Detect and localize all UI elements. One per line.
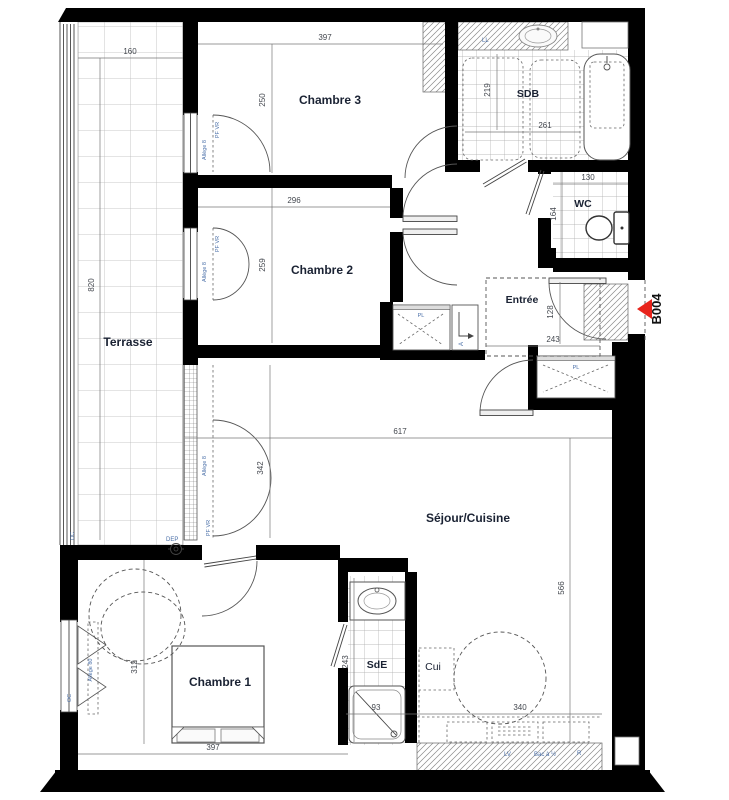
right-wall-niche xyxy=(615,737,639,765)
dim-sdb-height: 219 xyxy=(483,83,492,97)
wc-label: WC xyxy=(574,198,592,210)
dim-terrasse-width: 160 xyxy=(123,47,137,56)
sill-label-chambre3: Allège 8 xyxy=(202,140,208,160)
chambre1-label: Chambre 1 xyxy=(189,675,251,689)
dishwasher-label: LV xyxy=(504,752,511,758)
floorplan-page: PL PL A xyxy=(0,0,729,800)
dim-sejour-width: 617 xyxy=(393,427,407,436)
cuisine-label: Cui xyxy=(425,661,441,673)
entree-label: Entrée xyxy=(506,294,539,306)
dim-entree-width: 243 xyxy=(546,335,560,344)
dim-entree-height: 128 xyxy=(546,305,555,319)
unit-id-label: B004 xyxy=(649,293,664,325)
terrasse-label: Terrasse xyxy=(103,335,152,349)
window-pf-label-chambre2: PF VR xyxy=(215,236,221,252)
sill-label-chambre1: Allège 80 xyxy=(88,659,94,682)
technical-duct: A xyxy=(452,305,478,350)
sejour-label: Séjour/Cuisine xyxy=(426,511,510,525)
window-pf-label-chambre3: PF VR xyxy=(215,122,221,138)
chambre2-window xyxy=(184,228,197,300)
dim-chambre3-height: 250 xyxy=(258,93,267,107)
chambre3-label: Chambre 3 xyxy=(299,93,361,107)
dim-cuisine-width: 340 xyxy=(513,703,527,712)
dim-wc-width: 130 xyxy=(581,173,595,182)
terrasse-floor xyxy=(60,22,183,545)
chambre3-window xyxy=(184,113,197,173)
duct-label: A xyxy=(459,342,465,346)
dim-chambre2-height: 259 xyxy=(258,258,267,272)
dim-sde-width: 93 xyxy=(372,703,381,712)
dim-sejour-height: 566 xyxy=(557,581,566,595)
fridge-label: R xyxy=(577,751,582,757)
dim-sdb-width: 261 xyxy=(538,121,552,130)
half-sink-label: Bac à ½ xyxy=(534,751,556,758)
bay-window-track xyxy=(184,363,197,540)
dim-sejour-bay: 342 xyxy=(256,461,265,475)
shower-tray xyxy=(349,686,405,743)
bathtub xyxy=(584,54,630,160)
window-pf-label-bay: PF VR xyxy=(206,520,212,536)
bed xyxy=(172,646,264,743)
dim-chambre1-width: 397 xyxy=(206,743,220,752)
washing-machine-label: LL xyxy=(482,38,489,44)
dim-sde-height: 243 xyxy=(341,655,350,669)
closet-entree: PL xyxy=(537,356,615,398)
window-oc-label-terrasse: OC xyxy=(70,532,76,540)
closet-chambre2: PL xyxy=(393,305,450,350)
floor-drain-label: DEP xyxy=(166,537,178,543)
dim-chambre3-width: 397 xyxy=(318,33,332,42)
floorplan-svg: PL PL A xyxy=(0,0,729,800)
dim-wc-height: 164 xyxy=(549,207,558,221)
closet-label: PL xyxy=(418,313,425,319)
dim-terrasse-height: 820 xyxy=(87,278,96,292)
sill-label-chambre2: Allège 8 xyxy=(202,262,208,282)
washbasin-laundry xyxy=(519,25,557,47)
entrance-landing-hatch xyxy=(584,284,628,340)
window-oc-label-chambre1: OC xyxy=(67,694,73,702)
dim-chambre1-height: 312 xyxy=(130,660,139,674)
top-wall-niche xyxy=(582,22,628,48)
dim-chambre2-width: 296 xyxy=(287,196,301,205)
sde-washbasin xyxy=(350,582,405,620)
sde-label: SdE xyxy=(367,659,387,671)
sdb-label: SDB xyxy=(517,88,540,100)
sill-label-bay: Allège 8 xyxy=(202,456,208,476)
chambre2-label: Chambre 2 xyxy=(291,263,353,277)
closet-label: PL xyxy=(573,365,580,371)
